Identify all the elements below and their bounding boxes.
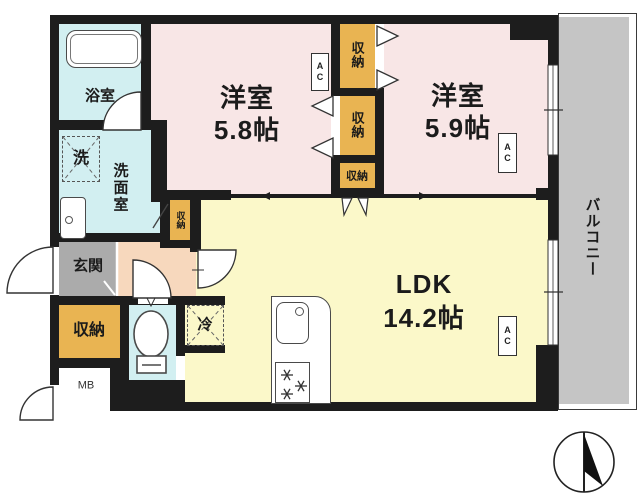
wall-left-lower	[50, 295, 59, 385]
wall-column-div2	[331, 155, 384, 163]
ldk-size-label: 14.2帖	[383, 305, 465, 331]
wall-toilet-left	[120, 296, 129, 403]
bathroom-label: 浴室	[85, 89, 115, 104]
storage1-label: 収納	[351, 41, 364, 69]
ldk-floor	[196, 198, 548, 403]
bathtub-icon	[66, 30, 142, 68]
storage3-label: 収納	[346, 172, 368, 183]
refrigerator-label: 冷	[197, 318, 212, 333]
wall-right-b	[548, 155, 558, 240]
wall-top	[50, 15, 558, 24]
stove-icon	[275, 362, 310, 403]
washbasin-icon	[60, 197, 86, 239]
wall-bath-right	[141, 15, 151, 130]
washroom-label: 洗面室	[113, 163, 128, 214]
wall-column-left-a	[331, 24, 340, 94]
wall-under-toilet	[129, 380, 185, 403]
wall-fridge-bottom	[185, 345, 225, 353]
balcony-label: バルコニー	[585, 197, 600, 277]
meter-box-label: MB	[78, 381, 95, 392]
kitchen-sink-icon	[276, 302, 309, 344]
wall-topright-block	[510, 15, 552, 40]
ac-unit-room1: AC	[311, 53, 329, 91]
mb-door-arc	[20, 387, 53, 420]
ldk-name-label: LDK	[396, 271, 452, 297]
room2-size-label: 5.9帖	[425, 115, 491, 141]
storage2-label: 収納	[351, 111, 364, 139]
toilet-floor	[129, 305, 176, 380]
wall-column-div1	[331, 88, 384, 96]
wall-hallstorage-left	[160, 194, 170, 246]
wall-botright-block	[536, 345, 558, 402]
wall-toilet-right	[176, 296, 185, 356]
ac-unit-ldk: AC	[498, 316, 517, 356]
wall-room-ldk-thick	[151, 190, 231, 200]
wall-bottom	[110, 402, 558, 411]
wall-bath-bottom	[50, 120, 110, 130]
entrance-door-arc	[7, 247, 53, 293]
wall-left-upper	[50, 15, 59, 247]
wall-hallstorage-bottom	[160, 240, 201, 248]
wall-fridge-top	[185, 296, 225, 305]
wall-column-right	[375, 94, 384, 198]
hall-storage-label: 収納	[176, 211, 185, 229]
room1-name-label: 洋室	[220, 85, 274, 111]
washing-machine-label: 洗	[73, 151, 89, 167]
wall-mb-right	[110, 368, 120, 411]
entrance-label: 玄関	[73, 259, 103, 274]
ac-unit-room2: AC	[498, 133, 517, 173]
wall-under-storage	[50, 358, 120, 368]
room1-size-label: 5.8帖	[214, 117, 280, 143]
floor-plan: 洋室 5.8帖 洋室 5.9帖 LDK 14.2帖 浴室 洗 洗面室 玄関 収納…	[0, 0, 640, 503]
room2-name-label: 洋室	[431, 83, 485, 109]
north-arrow-icon	[554, 432, 614, 492]
toilet-door-opening	[138, 297, 168, 304]
entry-storage-label: 収納	[73, 323, 105, 339]
